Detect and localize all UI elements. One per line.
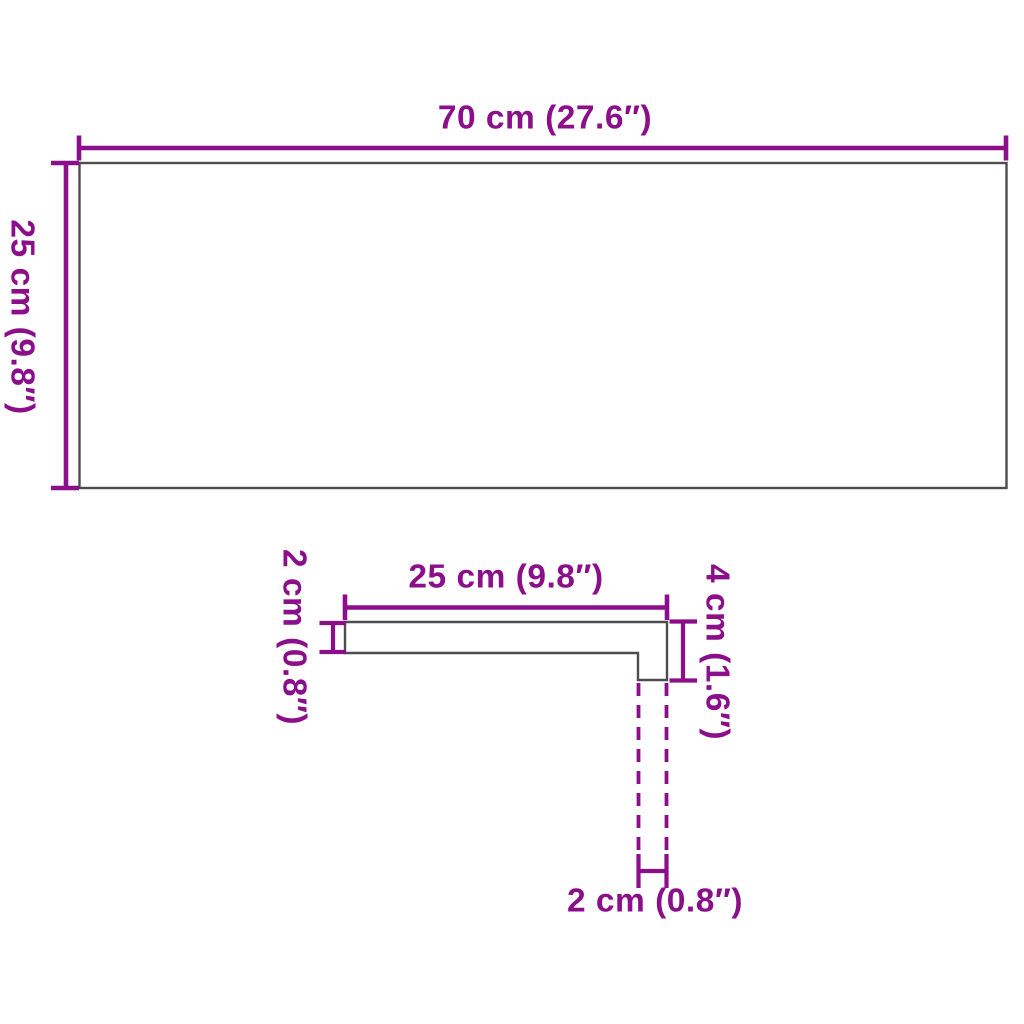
top-width-dimension-label: 70 cm (27.6″)	[438, 100, 652, 137]
diagram-svg: 70 cm (27.6″) 25 cm (9.8″) 25 cm (9.8″) …	[0, 0, 1024, 1024]
top-view-figure: 70 cm (27.6″) 25 cm (9.8″)	[4, 100, 1007, 489]
profile-view-figure: 25 cm (9.8″) 2 cm (0.8″) 4 cm (1.6″) 2 c…	[276, 549, 744, 920]
top-height-dimension-label: 25 cm (9.8″)	[4, 219, 41, 414]
step-profile-outline	[345, 622, 667, 680]
profile-nose-height-dimension-label: 4 cm (1.6″)	[699, 564, 736, 740]
profile-width-dimension-label: 25 cm (9.8″)	[408, 559, 603, 596]
panel-top-outline	[80, 163, 1007, 488]
nose-overhang-dimension-label: 2 cm (0.8″)	[567, 883, 743, 920]
dimension-diagram: 70 cm (27.6″) 25 cm (9.8″) 25 cm (9.8″) …	[0, 0, 1024, 1024]
profile-thickness-dimension-label: 2 cm (0.8″)	[276, 549, 313, 725]
